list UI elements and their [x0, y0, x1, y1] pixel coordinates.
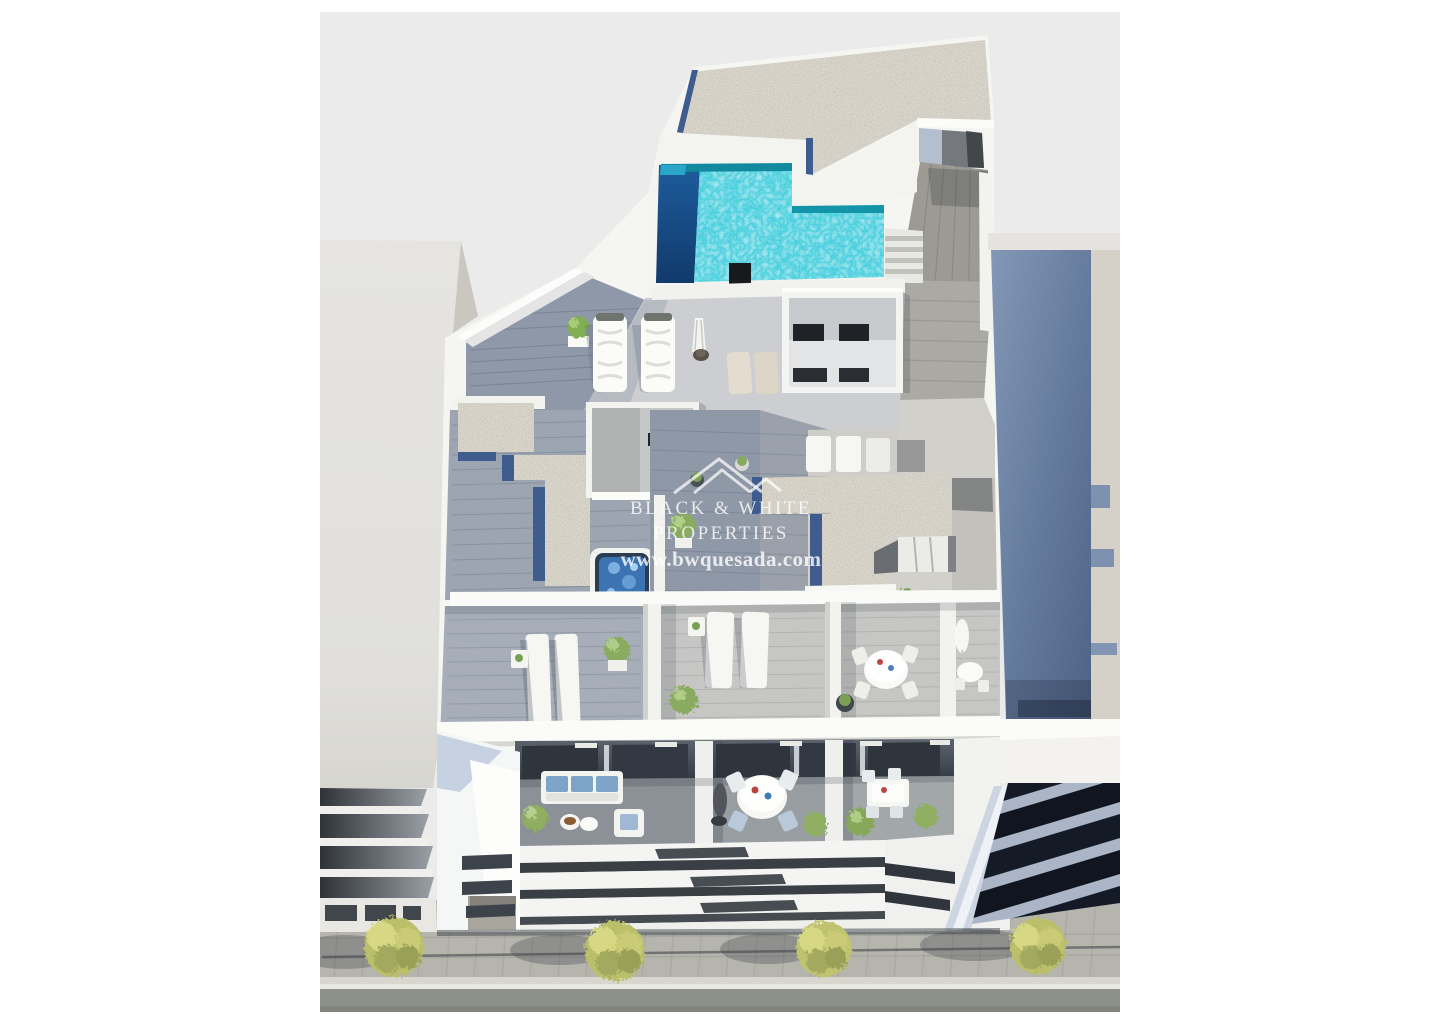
svg-text:BLACK & WHITE: BLACK & WHITE	[630, 498, 812, 519]
svg-text:www.bwquesada.com: www.bwquesada.com	[620, 547, 821, 571]
svg-text:PROPERTIES: PROPERTIES	[653, 523, 789, 544]
